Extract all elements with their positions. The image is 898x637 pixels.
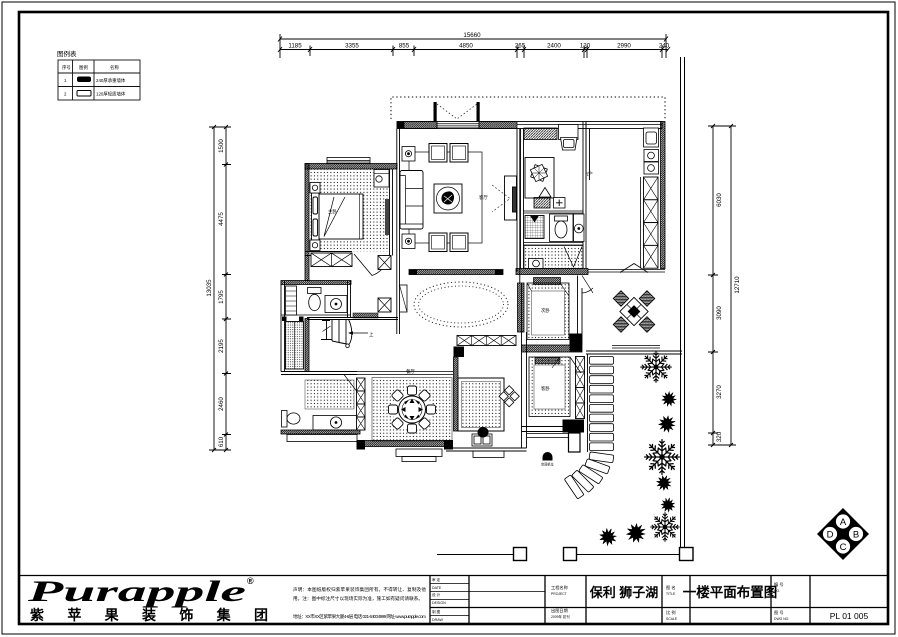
svg-text:DATE: DATE xyxy=(432,586,442,590)
svg-text:13035: 13035 xyxy=(206,279,213,297)
svg-text:2990: 2990 xyxy=(617,43,631,50)
svg-text:声明：本图纸版权归紫苹果装饰集团所有，不得转让、复制及他: 声明：本图纸版权归紫苹果装饰集团所有，不得转让、复制及他 xyxy=(293,586,426,593)
svg-text:1795: 1795 xyxy=(218,290,225,304)
svg-text:3270: 3270 xyxy=(716,385,723,399)
svg-text:DESIGN: DESIGN xyxy=(432,601,446,605)
svg-text:上: 上 xyxy=(369,331,374,337)
svg-text:320: 320 xyxy=(716,431,723,442)
svg-text:D: D xyxy=(827,530,834,541)
svg-text:®: ® xyxy=(247,576,254,586)
svg-text:4475: 4475 xyxy=(218,212,225,226)
svg-text:120厚轻质墙体: 120厚轻质墙体 xyxy=(96,91,126,98)
svg-text:3355: 3355 xyxy=(345,43,359,50)
svg-text:240厚承重墙体: 240厚承重墙体 xyxy=(96,77,126,84)
svg-text:审 定: 审 定 xyxy=(432,577,441,582)
svg-text:1185: 1185 xyxy=(288,43,302,50)
svg-text:PL 01 005: PL 01 005 xyxy=(830,611,869,621)
svg-text:PROJECT: PROJECT xyxy=(551,592,567,596)
svg-text:C: C xyxy=(840,542,847,553)
svg-text:SCALE: SCALE xyxy=(666,617,678,621)
svg-text:图 名: 图 名 xyxy=(666,584,676,591)
svg-text:NO.: NO. xyxy=(774,589,780,593)
svg-text:图例表: 图例表 xyxy=(57,49,77,58)
svg-text:比 例: 比 例 xyxy=(666,609,676,616)
svg-text:610: 610 xyxy=(218,436,225,447)
svg-text:1500: 1500 xyxy=(218,139,225,153)
svg-text:B: B xyxy=(853,530,859,541)
svg-text:地址：XX市XX区紫苹果大厦4-6层 电话 021-640: 地址：XX市XX区紫苹果大厦4-6层 电话 021-64004999 网址 ww… xyxy=(293,613,426,620)
svg-text:DWG NO.: DWG NO. xyxy=(774,617,789,621)
svg-text:客厅: 客厅 xyxy=(479,194,488,201)
svg-text:保利 狮子湖: 保利 狮子湖 xyxy=(589,585,659,600)
svg-text:6030: 6030 xyxy=(716,193,723,207)
svg-text:2460: 2460 xyxy=(218,397,225,411)
svg-text:TITLE: TITLE xyxy=(666,592,676,596)
svg-text:2009年 初刊: 2009年 初刊 xyxy=(551,614,570,619)
svg-text:序号: 序号 xyxy=(62,64,71,71)
svg-text:一楼平面布置图: 一楼平面布置图 xyxy=(683,584,778,600)
svg-text:编 号: 编 号 xyxy=(774,581,784,588)
svg-text:DRAW: DRAW xyxy=(432,618,443,622)
svg-text:客卧: 客卧 xyxy=(541,385,550,392)
svg-text:餐厅: 餐厅 xyxy=(406,368,415,375)
svg-text:265: 265 xyxy=(515,43,526,50)
svg-text:名称: 名称 xyxy=(110,64,119,71)
svg-text:A: A xyxy=(840,517,847,528)
svg-text:出图日期: 出图日期 xyxy=(551,607,568,614)
svg-text:855: 855 xyxy=(399,43,410,50)
svg-text:3090: 3090 xyxy=(716,306,723,320)
svg-text:制 图: 制 图 xyxy=(432,609,441,614)
svg-text:120: 120 xyxy=(580,43,591,50)
svg-text:240: 240 xyxy=(659,43,670,50)
svg-text:2400: 2400 xyxy=(547,43,561,50)
svg-text:2195: 2195 xyxy=(218,339,225,353)
svg-text:空调机位: 空调机位 xyxy=(541,462,555,467)
svg-text:15660: 15660 xyxy=(463,32,481,39)
svg-text:次卧: 次卧 xyxy=(541,307,550,314)
svg-text:设 计: 设 计 xyxy=(432,592,441,597)
svg-text:4850: 4850 xyxy=(459,43,473,50)
svg-text:主卧: 主卧 xyxy=(328,208,337,215)
svg-text:Purapple: Purapple xyxy=(26,575,246,608)
svg-text:工程名称: 工程名称 xyxy=(551,584,568,591)
svg-text:图例: 图例 xyxy=(79,64,88,71)
svg-text:12710: 12710 xyxy=(734,276,741,294)
svg-text:用。注：图中标注尺寸以现场实际为准，施工如有疑问请联系。: 用。注：图中标注尺寸以现场实际为准，施工如有疑问请联系。 xyxy=(293,595,423,602)
